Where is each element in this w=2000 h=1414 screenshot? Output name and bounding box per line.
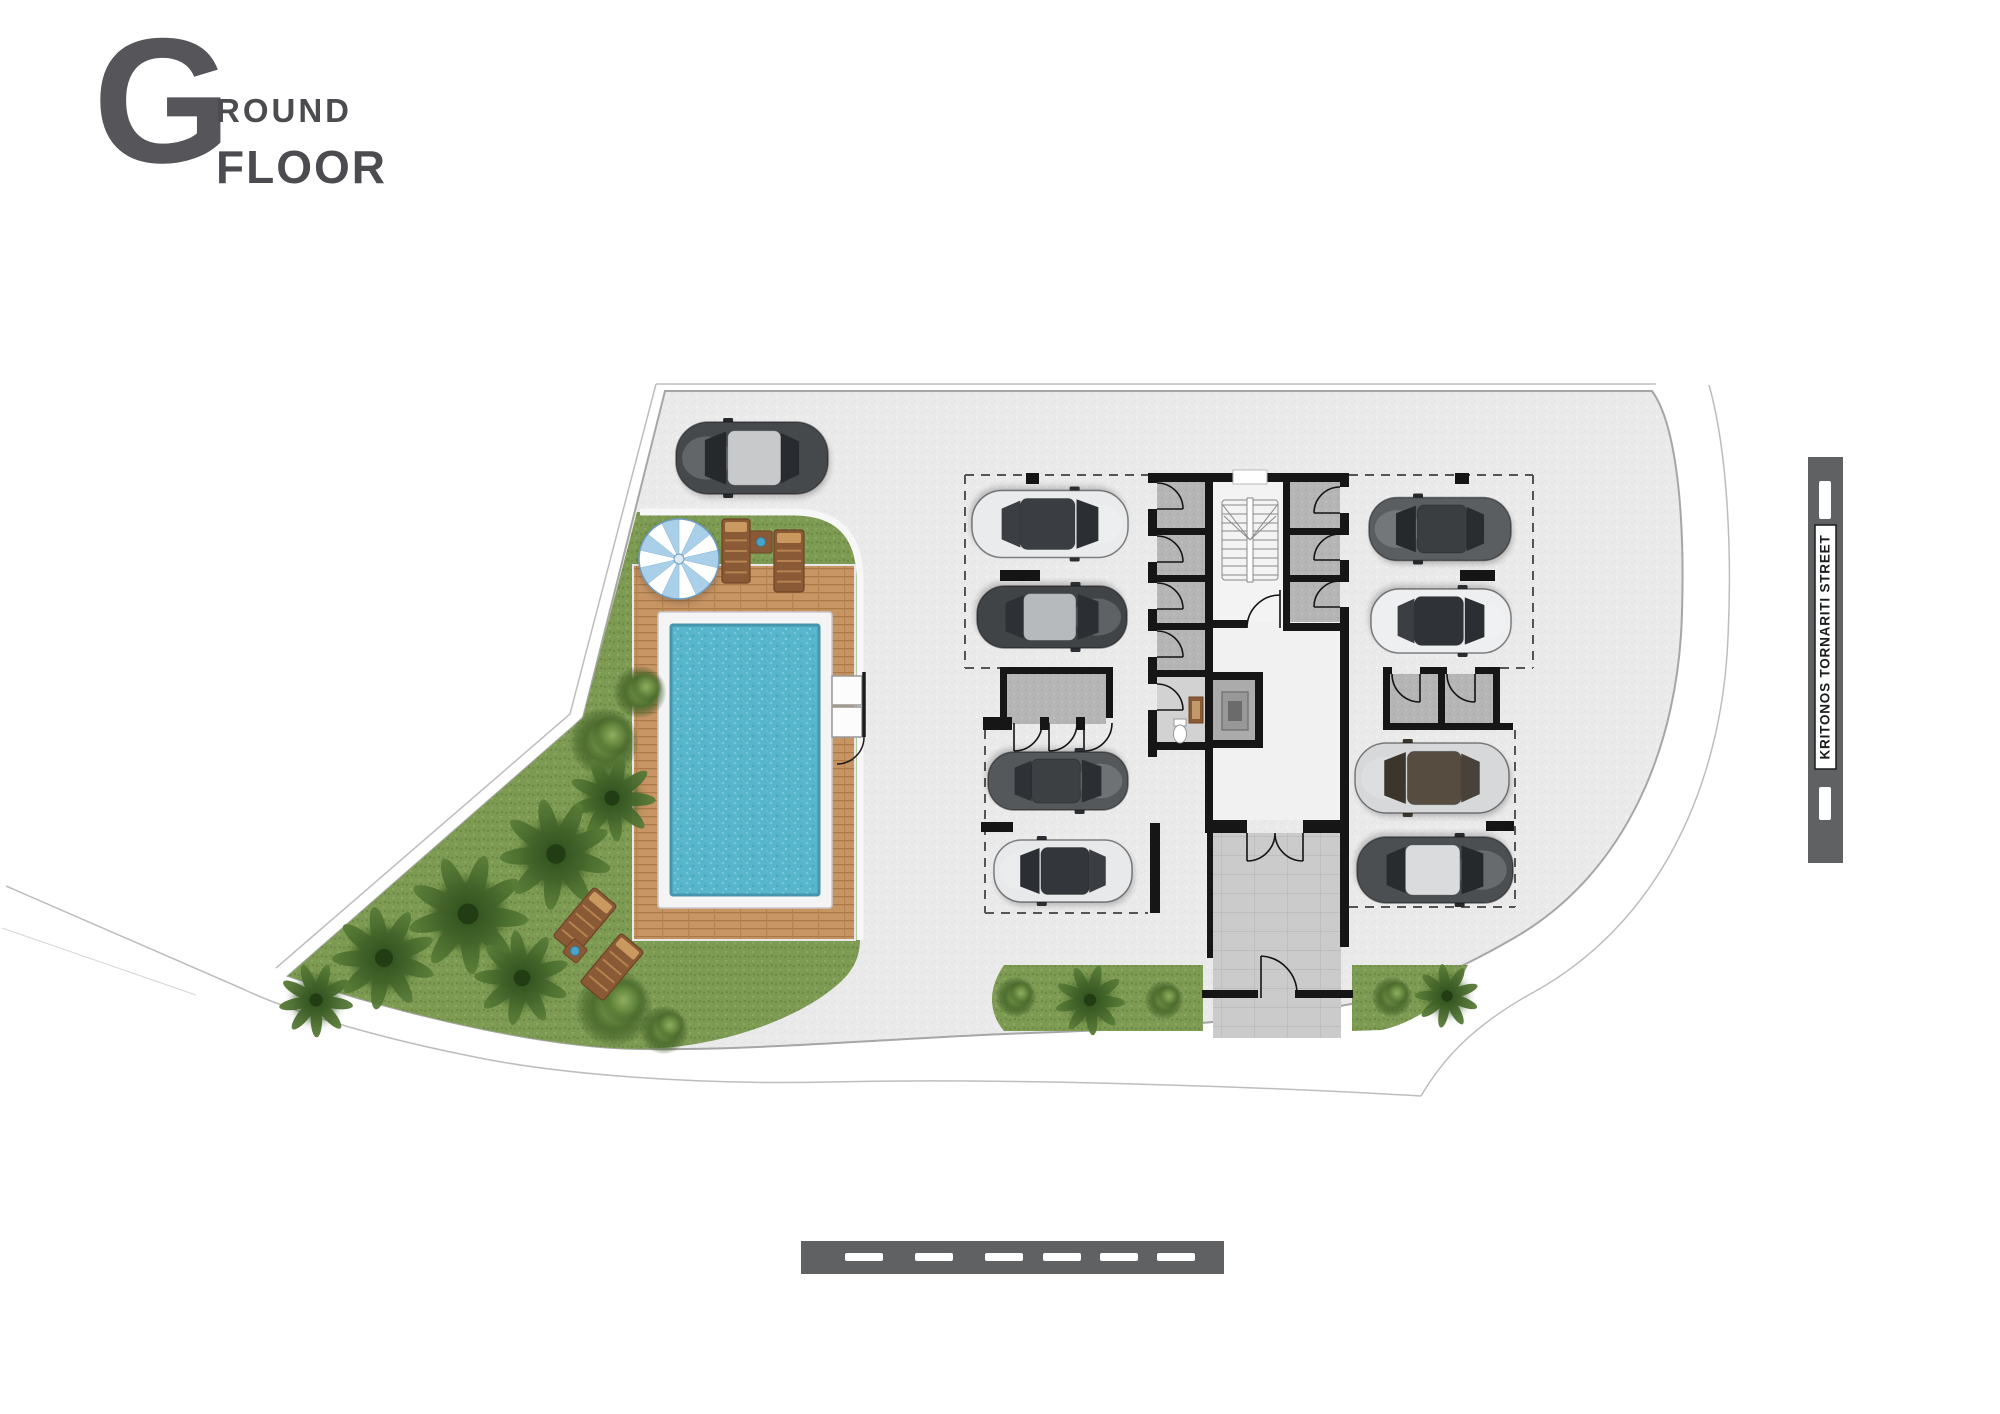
car-white-car-right-2 (1369, 585, 1511, 657)
parking-tick (1000, 570, 1040, 581)
bush-icon (570, 708, 638, 776)
street-dash (1819, 481, 1831, 519)
parking-tick (1026, 473, 1039, 484)
street-dash (1819, 787, 1831, 820)
pool-equipment-boxes (832, 676, 862, 737)
pool-water (671, 625, 819, 895)
bush-icon (1372, 977, 1412, 1017)
road-dash (915, 1253, 953, 1261)
road-marking (801, 1241, 1224, 1274)
elevator-core (1228, 701, 1242, 721)
sun-lounger (722, 519, 750, 583)
ground-floor-plan-page: G ROUND FLOOR (0, 0, 2000, 1414)
car-suv-top-left (676, 418, 830, 498)
entrance-walk (1213, 833, 1341, 1038)
car-suv-right-4 (1355, 833, 1513, 907)
road-dash (1157, 1253, 1195, 1261)
car-dark-car-right-1 (1369, 494, 1513, 565)
site-plan: KRITONOS TORNARITI STREET (0, 0, 2000, 1414)
car-white-car-left-1 (970, 487, 1128, 562)
parking-tick (981, 822, 1013, 832)
road-dash (1100, 1253, 1138, 1261)
road-dash (845, 1253, 883, 1261)
car-silver-car-right-3 (1355, 739, 1511, 817)
parking-tick (1455, 473, 1469, 484)
storage-annex-left (1007, 674, 1106, 724)
bush-icon (640, 1006, 688, 1054)
parking-tick (1460, 570, 1495, 581)
stair-opening (1233, 470, 1267, 484)
street-bar: KRITONOS TORNARITI STREET (1808, 457, 1843, 863)
side-table (750, 531, 772, 553)
road-dash (985, 1253, 1023, 1261)
road-dash (1043, 1253, 1081, 1261)
sun-lounger (774, 530, 804, 592)
car-gray-car-left-3 (986, 748, 1128, 814)
street-label: KRITONOS TORNARITI STREET (1818, 534, 1833, 759)
toilet-bowl (1174, 725, 1187, 743)
car-white-car-left-4 (994, 836, 1134, 906)
bush-icon (1145, 981, 1183, 1019)
parking-tick (1486, 821, 1514, 831)
umbrella-icon (637, 519, 721, 604)
bush-icon (614, 666, 666, 718)
car-dark-car-left-2 (975, 582, 1127, 652)
bush-icon (996, 977, 1036, 1017)
